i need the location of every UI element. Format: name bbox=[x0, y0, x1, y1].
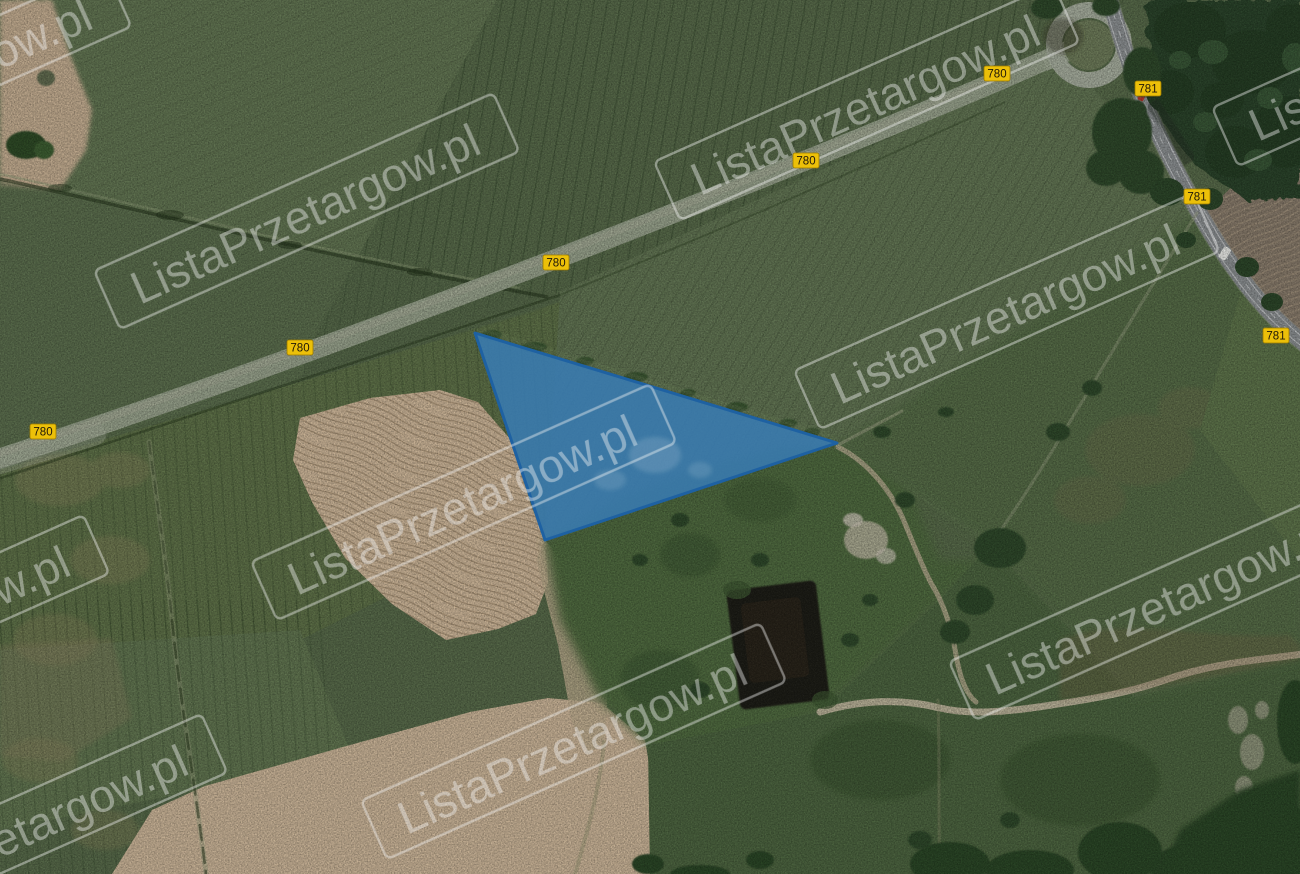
svg-text:780: 780 bbox=[987, 69, 1006, 81]
svg-text:781: 781 bbox=[1187, 192, 1206, 204]
svg-text:781: 781 bbox=[1266, 331, 1285, 343]
svg-text:781: 781 bbox=[1138, 84, 1157, 96]
svg-text:780: 780 bbox=[33, 427, 52, 439]
svg-text:780: 780 bbox=[290, 343, 309, 355]
svg-text:780: 780 bbox=[796, 156, 815, 168]
svg-text:780: 780 bbox=[546, 258, 565, 270]
